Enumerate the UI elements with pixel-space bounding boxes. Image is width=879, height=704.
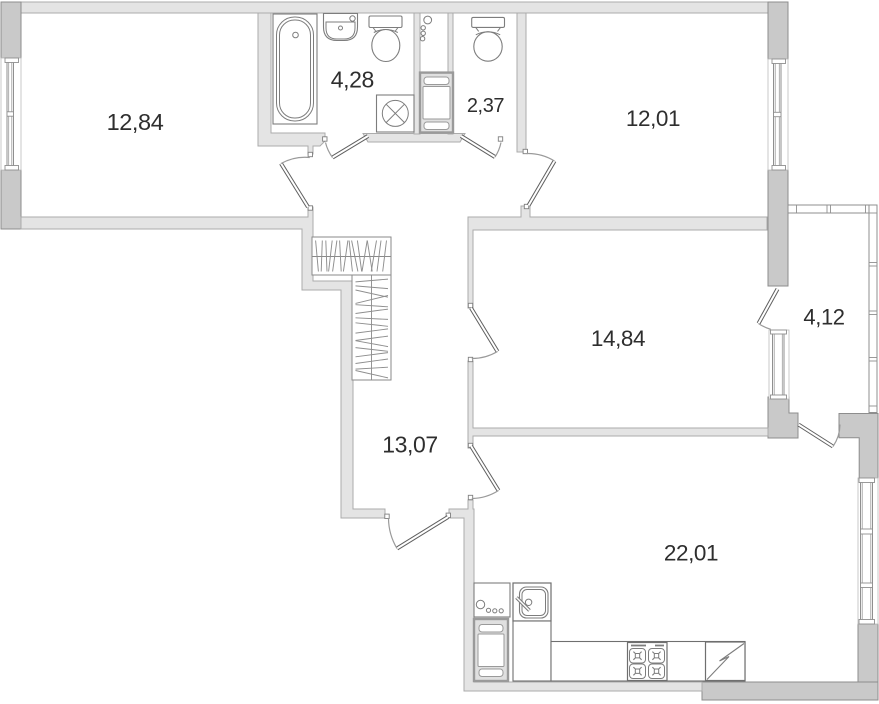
- svg-text:12,01: 12,01: [626, 106, 680, 131]
- svg-text:22,01: 22,01: [664, 541, 718, 566]
- svg-text:4,28: 4,28: [331, 67, 374, 93]
- svg-text:12,84: 12,84: [107, 109, 164, 135]
- svg-text:14,84: 14,84: [591, 326, 645, 351]
- svg-text:4,12: 4,12: [803, 305, 844, 330]
- svg-text:13,07: 13,07: [382, 432, 438, 458]
- svg-text:2,37: 2,37: [467, 95, 505, 117]
